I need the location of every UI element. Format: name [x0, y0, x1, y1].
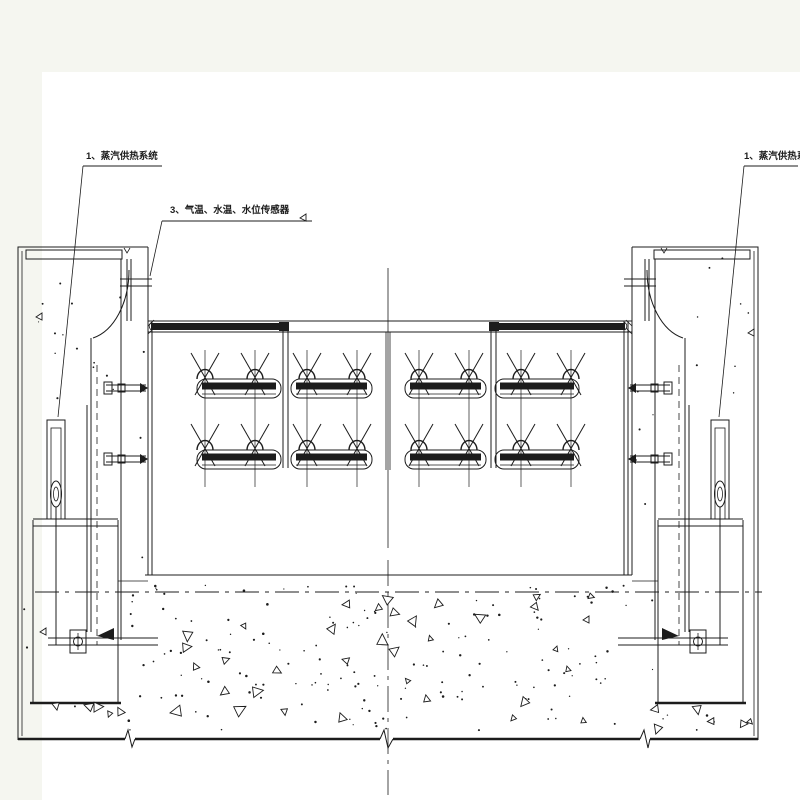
speckle-dot: [327, 684, 328, 685]
speckle-dot: [374, 612, 376, 614]
speckle-dot: [734, 366, 736, 368]
speckle-dot: [175, 618, 177, 620]
speckle-dot: [230, 634, 231, 635]
speckle-dot: [441, 681, 443, 683]
speckle-dot: [377, 685, 378, 686]
speckle-dot: [253, 639, 255, 641]
speckle-dot: [486, 614, 488, 616]
speckle-dot: [345, 585, 347, 587]
speckle-dot: [423, 664, 425, 666]
speckle-dot: [594, 655, 596, 657]
speckle-dot: [181, 675, 182, 676]
speckle-dot: [162, 608, 164, 610]
speckle-dot: [329, 616, 330, 617]
speckle-dot: [662, 718, 663, 719]
speckle-dot: [319, 658, 321, 660]
speckle-dot: [374, 675, 376, 677]
heating-pipe-core: [410, 454, 481, 461]
speckle-dot: [129, 729, 130, 730]
speckle-dot: [528, 698, 530, 700]
speckle-dot: [143, 351, 145, 353]
speckle-dot: [516, 684, 517, 685]
speckle-dot: [554, 684, 556, 686]
speckle-dot: [340, 678, 342, 680]
speckle-dot: [175, 694, 177, 696]
speckle-dot: [442, 651, 444, 653]
speckle-dot: [604, 678, 606, 680]
speckle-dot: [191, 620, 193, 622]
speckle-dot: [320, 673, 322, 675]
speckle-dot: [696, 729, 698, 731]
speckle-dot: [295, 683, 296, 684]
speckle-dot: [614, 723, 616, 725]
speckle-dot: [76, 348, 78, 350]
speckle-dot: [596, 662, 598, 664]
speckle-dot: [492, 604, 494, 606]
speckle-dot: [465, 636, 467, 638]
speckle-dot: [201, 678, 202, 679]
speckle-dot: [140, 437, 142, 439]
speckle-dot: [260, 697, 262, 699]
speckle-dot: [468, 674, 470, 676]
speckle-dot: [442, 695, 445, 698]
speckle-dot: [127, 719, 130, 722]
speckle-dot: [353, 671, 355, 673]
speckle-dot: [595, 678, 597, 680]
speckle-dot: [533, 687, 535, 689]
speckle-dot: [353, 586, 355, 588]
speckle-dot: [262, 632, 265, 635]
speckle-dot: [218, 649, 219, 650]
speckle-dot: [540, 618, 542, 620]
speckle-dot: [132, 594, 134, 596]
speckle-dot: [195, 711, 197, 713]
speckle-dot: [130, 613, 132, 615]
speckle-dot: [131, 601, 132, 602]
speckle-dot: [440, 691, 442, 693]
speckle-dot: [498, 614, 501, 617]
speckle-dot: [220, 649, 222, 651]
speckle-dot: [266, 603, 269, 606]
speckle-dot: [229, 651, 231, 653]
speckle-dot: [530, 587, 532, 589]
speckle-dot: [131, 625, 133, 627]
speckle-dot: [706, 714, 709, 717]
speckle-dot: [535, 588, 537, 590]
heating-pipe-core: [410, 383, 481, 390]
speckle-dot: [287, 663, 289, 665]
speckle-dot: [568, 648, 569, 649]
heating-pipe-core: [500, 454, 574, 461]
speckle-dot: [551, 708, 553, 710]
speckle-dot: [170, 650, 172, 652]
speckle-dot: [164, 653, 166, 655]
speckle-dot: [605, 587, 607, 589]
speckle-dot: [572, 675, 573, 676]
speckle-dot: [248, 691, 251, 694]
speckle-dot: [625, 605, 626, 606]
speckle-dot: [353, 724, 354, 725]
speckle-dot: [478, 729, 480, 731]
gate-top-beam: [493, 323, 625, 330]
speckle-dot: [245, 675, 248, 678]
speckle-dot: [113, 389, 114, 390]
label-sensors: 3、气温、水温、水位传感器: [170, 204, 290, 216]
speckle-dot: [239, 672, 241, 674]
speckle-dot: [644, 503, 646, 505]
speckle-dot: [457, 696, 459, 698]
speckle-dot: [506, 651, 507, 652]
speckle-dot: [356, 593, 357, 594]
speckle-dot: [363, 699, 365, 701]
heating-pipe-core: [202, 383, 276, 390]
flag-mark: [36, 313, 42, 320]
speckle-dot: [651, 599, 653, 601]
speckle-dot: [555, 718, 556, 719]
speckle-dot: [611, 590, 614, 593]
speckle-dot: [142, 664, 144, 666]
speckle-dot: [514, 681, 516, 683]
speckle-dot: [153, 661, 155, 663]
speckle-dot: [71, 303, 73, 305]
speckle-dot: [42, 303, 44, 305]
speckle-dot: [332, 622, 334, 624]
speckle-dot: [349, 719, 350, 720]
speckle-dot: [600, 682, 602, 684]
speckle-dot: [54, 353, 55, 354]
speckle-dot: [243, 589, 246, 592]
speckle-dot: [62, 334, 63, 335]
speckle-dot: [301, 703, 303, 705]
speckle-dot: [748, 312, 750, 314]
speckle-dot: [488, 639, 490, 641]
speckle-dot: [303, 650, 305, 652]
speckle-dot: [606, 650, 608, 652]
speckle-dot: [652, 414, 653, 415]
speckle-dot: [154, 585, 157, 588]
speckle-dot: [283, 588, 284, 589]
speckle-dot: [227, 619, 229, 621]
gate-steam-heating-section-drawing: 1、蒸汽供热系统 3、气温、水温、水位传感器 1、蒸汽供热系统: [0, 0, 800, 800]
speckle-dot: [93, 366, 95, 368]
speckle-dot: [536, 616, 538, 618]
speckle-dot: [139, 695, 141, 697]
speckle-dot: [479, 663, 481, 665]
speckle-dot: [637, 391, 639, 393]
speckle-dot: [357, 683, 359, 685]
speckle-dot: [93, 362, 95, 364]
speckle-dot: [156, 589, 158, 591]
speckle-dot: [279, 649, 280, 650]
speckle-dot: [382, 718, 384, 720]
speckle-dot: [652, 669, 653, 670]
speckle-dot: [405, 688, 406, 689]
speckle-dot: [59, 283, 61, 285]
speckle-dot: [539, 598, 541, 600]
speckle-dot: [180, 652, 182, 654]
speckle-dot: [667, 714, 668, 715]
speckle-dot: [56, 397, 58, 399]
speckle-dot: [534, 611, 536, 613]
speckle-dot: [205, 585, 206, 586]
speckle-dot: [311, 684, 313, 686]
speckle-dot: [721, 257, 723, 259]
speckle-dot: [262, 684, 264, 686]
speckle-dot: [358, 625, 359, 626]
speckle-dot: [623, 585, 625, 587]
speckle-dot: [207, 680, 210, 683]
heating-pipe-core: [202, 454, 276, 461]
speckle-dot: [579, 663, 581, 665]
speckle-dot: [538, 629, 539, 630]
speckle-dot: [307, 586, 309, 588]
speckle-dot: [461, 691, 463, 693]
speckle-dot: [160, 697, 162, 699]
speckle-dot: [26, 646, 28, 648]
speckle-dot: [181, 695, 183, 697]
speckle-dot: [347, 627, 349, 629]
speckle-dot: [268, 642, 270, 644]
speckle-dot: [375, 725, 377, 727]
speckle-dot: [206, 639, 208, 641]
label-steam-system-right: 1、蒸汽供热系统: [744, 150, 800, 162]
speckle-dot: [385, 728, 387, 730]
speckle-dot: [547, 718, 549, 720]
speckle-dot: [327, 689, 329, 691]
label-steam-system-left: 1、蒸汽供热系统: [86, 150, 158, 162]
speckle-dot: [315, 682, 317, 684]
speckle-dot: [574, 595, 576, 597]
speckle-dot: [141, 556, 143, 558]
speckle-dot: [639, 428, 641, 430]
speckle-dot: [426, 665, 428, 667]
speckle-dot: [733, 392, 734, 393]
speckle-dot: [119, 296, 121, 298]
speckle-dot: [353, 622, 355, 624]
speckle-dot: [364, 610, 365, 611]
speckle-dot: [314, 721, 316, 723]
speckle-dot: [74, 705, 76, 707]
engineering-drawing-page: 1、蒸汽供热系统 3、气温、水温、水位传感器 1、蒸汽供热系统: [0, 0, 800, 800]
speckle-dot: [354, 685, 356, 687]
speckle-dot: [368, 710, 370, 712]
speckle-dot: [413, 663, 415, 665]
speckle-dot: [221, 729, 223, 731]
speckle-dot: [406, 717, 408, 719]
speckle-dot: [106, 375, 108, 377]
speckle-dot: [740, 303, 742, 305]
drawing-paper: [42, 72, 800, 800]
speckle-dot: [590, 601, 592, 603]
speckle-dot: [458, 637, 459, 638]
speckle-dot: [362, 708, 363, 709]
speckle-dot: [374, 722, 376, 724]
speckle-dot: [563, 672, 565, 674]
speckle-dot: [315, 645, 317, 647]
speckle-dot: [207, 715, 209, 717]
speckle-dot: [386, 632, 387, 633]
speckle-dot: [400, 698, 402, 700]
gate-top-beam: [151, 323, 283, 330]
speckle-dot: [155, 588, 156, 589]
speckle-dot: [459, 654, 461, 656]
speckle-dot: [38, 321, 39, 322]
speckle-dot: [366, 617, 368, 619]
speckle-dot: [697, 316, 698, 317]
speckle-dot: [461, 698, 463, 700]
speckle-dot: [476, 600, 477, 601]
speckle-dot: [448, 623, 450, 625]
speckle-dot: [696, 364, 698, 366]
speckle-dot: [23, 608, 25, 610]
speckle-dot: [709, 267, 711, 269]
speckle-dot: [54, 332, 56, 334]
heating-pipe-core: [500, 383, 574, 390]
speckle-dot: [541, 659, 543, 661]
speckle-dot: [163, 593, 165, 595]
speckle-dot: [548, 669, 550, 671]
speckle-dot: [255, 684, 257, 686]
speckle-dot: [482, 686, 484, 688]
speckle-dot: [569, 696, 570, 697]
speckle-dot: [636, 459, 637, 460]
